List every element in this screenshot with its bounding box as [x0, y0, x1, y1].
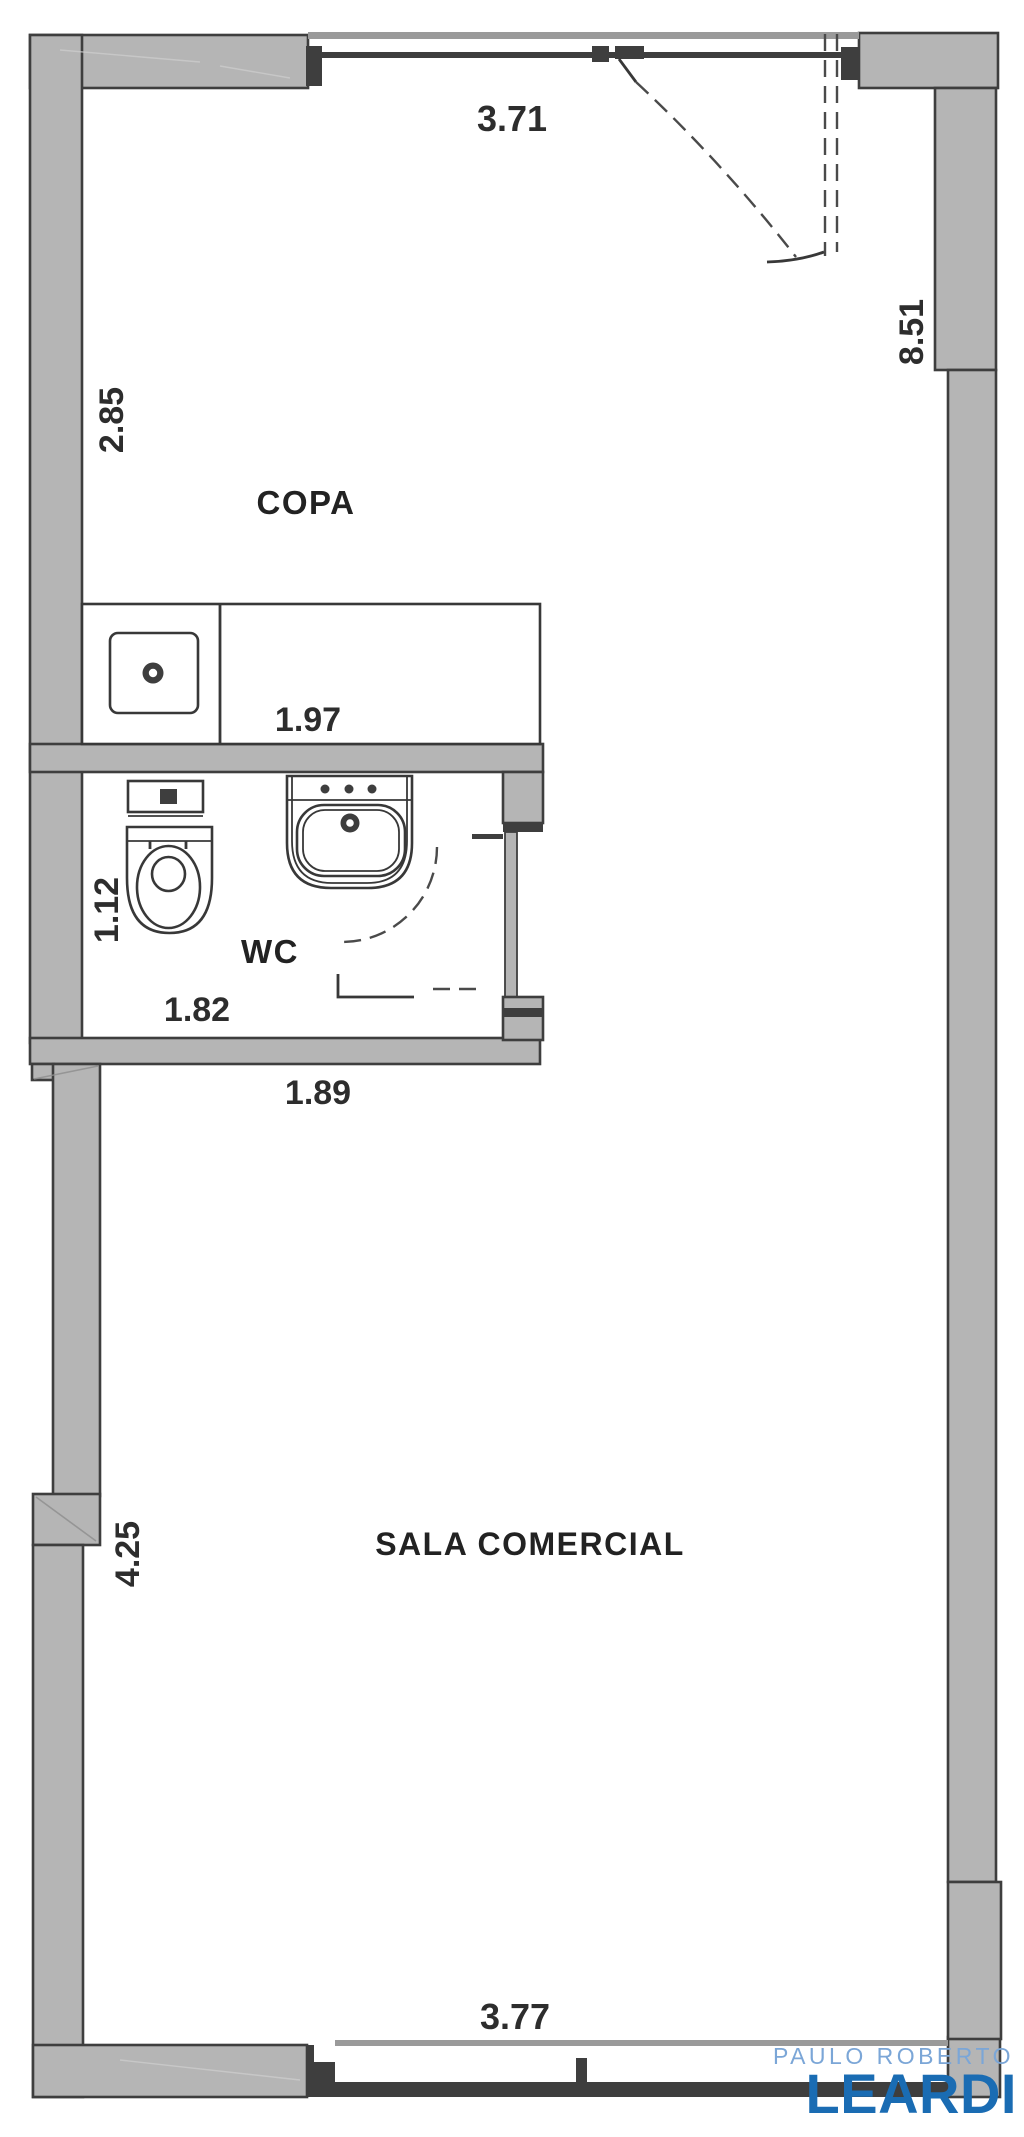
top-window-inner-line [308, 52, 845, 58]
toilet-flush-oval [152, 857, 185, 891]
wall-wc-bottom [30, 1038, 540, 1064]
dim-below-wc: 1.89 [285, 1074, 351, 1112]
wall-right-mid [948, 370, 996, 1882]
wall-top-right-corner [859, 33, 998, 88]
bottom-window-mullion-bar [557, 2082, 608, 2094]
wc-sink-faucet-hole-icon [345, 785, 354, 794]
room-label-wc: WC [241, 933, 299, 970]
wall-left-mid [53, 1064, 100, 1496]
wall-left-lower [33, 1545, 83, 2097]
wc-door-jamb-top [503, 772, 543, 823]
wall-right-upper [935, 88, 996, 370]
wall-copa-wc-divider [30, 744, 543, 772]
dim-right: 8.51 [893, 299, 931, 365]
room-label-sala: SALA COMERCIAL [375, 1526, 685, 1562]
wall-left-upper [30, 35, 82, 1043]
top-window-and-entrance [306, 32, 860, 262]
entrance-door-swing-arc [636, 82, 796, 257]
wc-sink-drain-hole [346, 819, 354, 827]
wc-partition-line [505, 832, 517, 998]
logo-name-main: LEARDI [806, 2062, 1017, 2125]
dim-counter: 1.97 [275, 701, 341, 739]
wc-door-jamb-top-edge [503, 822, 543, 832]
wc-door-jamb-bottom [503, 997, 543, 1040]
labels: 3.71 2.85 COPA 1.97 8.51 1.12 WC 1.82 1.… [88, 98, 931, 2037]
wc-door-stop-line [472, 834, 503, 839]
wc-door-jamb-bottom-edge [503, 1008, 543, 1017]
dim-top: 3.71 [477, 98, 547, 139]
wc-sink-faucet-hole-icon [321, 785, 330, 794]
entrance-strike-jamb [841, 47, 860, 80]
entrance-hinge-jamb [592, 46, 609, 62]
kitchen-sink-drain-hole [149, 669, 157, 677]
wc-door-leaf [338, 974, 414, 997]
toilet [127, 781, 212, 933]
dim-wc-width: 1.82 [164, 991, 230, 1029]
brand-logo: PAULO ROBERTO LEARDI [773, 2043, 1017, 2125]
wc-sink [287, 776, 412, 888]
toilet-flush-button-icon [160, 789, 177, 804]
top-window-jamb-left [306, 46, 322, 86]
bottom-window-jamb [307, 2062, 335, 2097]
walls [30, 33, 1001, 2097]
room-label-copa: COPA [257, 484, 356, 521]
entrance-hinge-jamb2 [615, 46, 644, 59]
bottom-window-mullion-stem [576, 2058, 587, 2084]
wall-right-lower [948, 1882, 1001, 2039]
dim-sala-left: 4.25 [109, 1521, 147, 1587]
floorplan-svg: 3.71 2.85 COPA 1.97 8.51 1.12 WC 1.82 1.… [0, 0, 1024, 2137]
dim-copa-left: 2.85 [93, 387, 131, 453]
wc-sink-faucet-hole-icon [368, 785, 377, 794]
entrance-door-hinge-tick [619, 59, 636, 82]
wall-bottom-left [33, 2045, 307, 2097]
dim-wc-left: 1.12 [88, 877, 126, 943]
top-window-outer-line [308, 32, 859, 39]
dim-bottom: 3.77 [480, 1996, 550, 2037]
